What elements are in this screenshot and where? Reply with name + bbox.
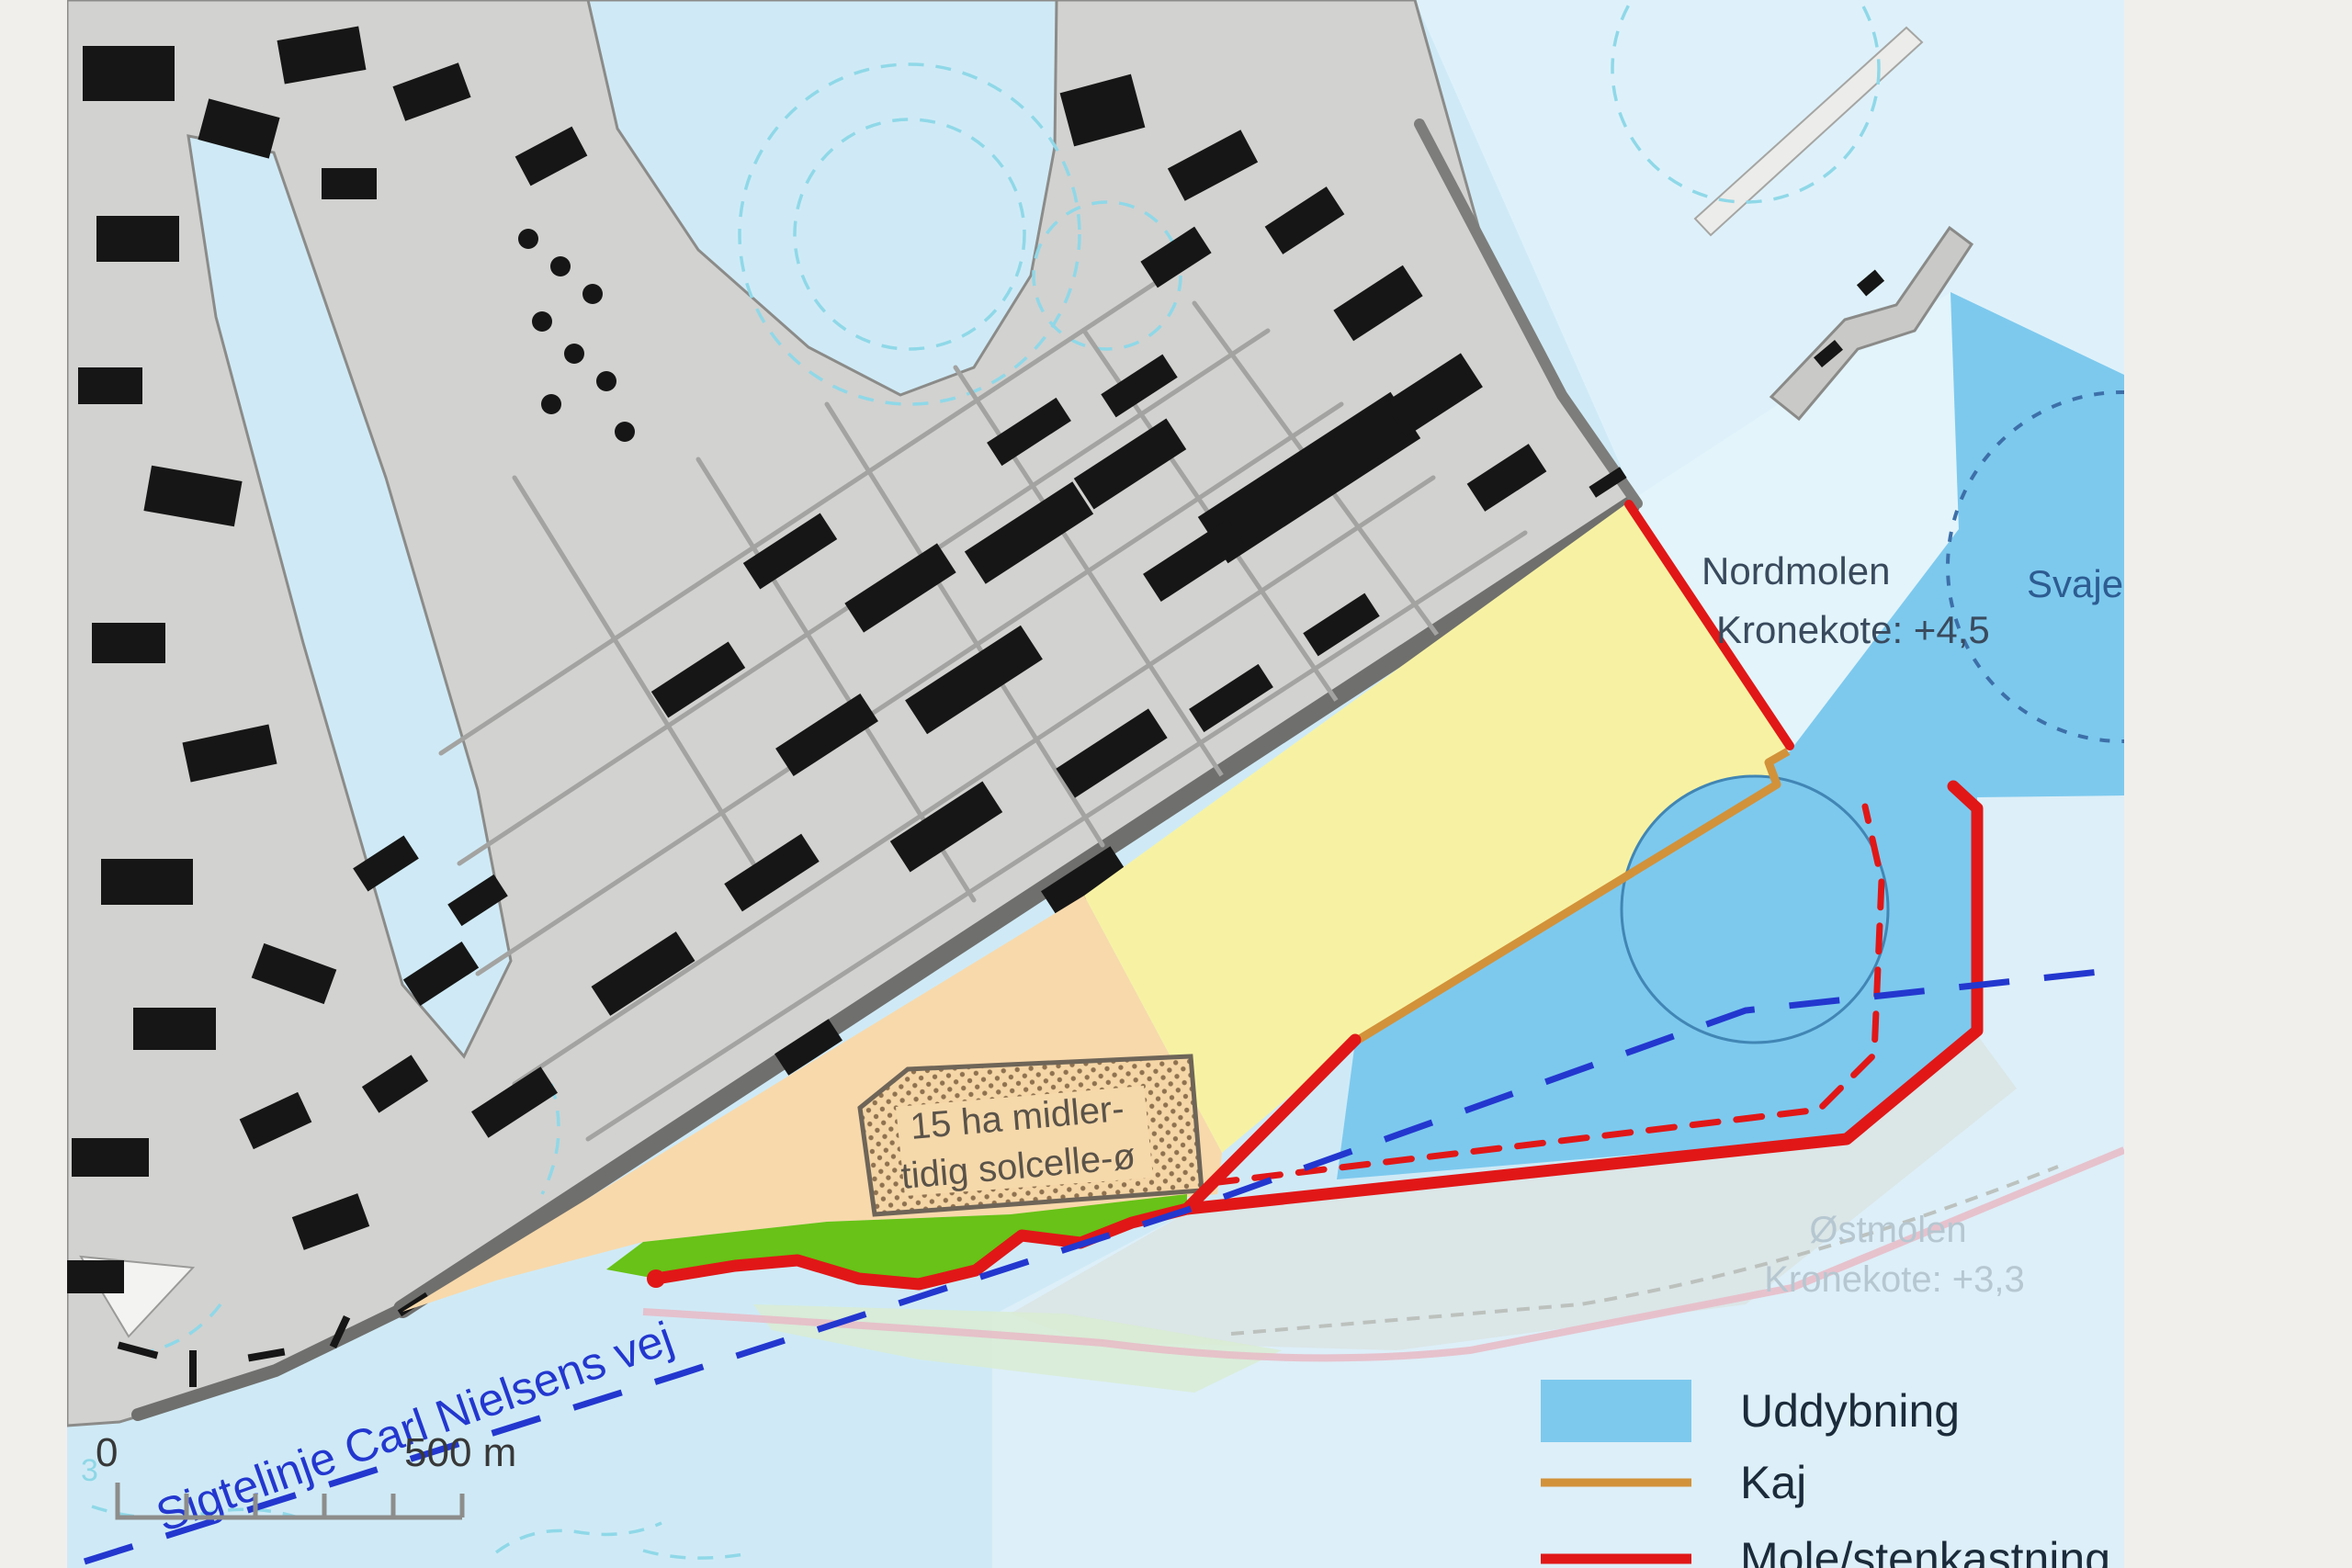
tank <box>541 394 561 414</box>
legend-label-uddybning: Uddybning <box>1740 1385 1960 1437</box>
turning-circle <box>1622 776 1888 1043</box>
scale-start-label: 0 <box>96 1430 118 1475</box>
tank <box>596 371 616 391</box>
tank <box>582 284 603 304</box>
building <box>72 1138 149 1177</box>
building <box>83 46 175 101</box>
nordmolen-kronekote-label: Kronekote: +4,5 <box>1716 608 1990 651</box>
harbor-plan-map: Nordmolen Kronekote: +4,5 Svajeb Østmole… <box>0 0 2352 1568</box>
mole-end-blob <box>647 1269 665 1288</box>
marina-pier <box>189 1350 197 1387</box>
tank <box>550 256 571 276</box>
building <box>96 216 179 262</box>
building <box>133 1008 216 1050</box>
building <box>322 168 377 199</box>
building <box>60 1260 124 1293</box>
scale-end-label: 500 m <box>404 1430 516 1475</box>
nordmolen-label: Nordmolen <box>1702 549 1890 592</box>
tank <box>518 229 538 249</box>
tank <box>532 311 552 332</box>
ostmolen-label: Østmolen <box>1809 1210 1966 1250</box>
building <box>78 367 142 404</box>
legend-label-mole: Mole/stenkastning <box>1740 1533 2110 1568</box>
frame-right-strip <box>2124 0 2352 1568</box>
building <box>101 859 193 905</box>
legend-label-kaj: Kaj <box>1740 1457 1806 1508</box>
building <box>92 623 165 663</box>
tank <box>564 344 584 364</box>
tank <box>615 422 635 442</box>
frame-left-strip <box>0 0 67 1568</box>
legend-item-uddybning: Uddybning <box>1541 1380 1960 1442</box>
ostmolen-kronekote-label: Kronekote: +3,3 <box>1764 1259 2025 1300</box>
legend-swatch-uddybning <box>1541 1380 1691 1442</box>
harbor-plan-page: Nordmolen Kronekote: +4,5 Svajeb Østmole… <box>0 0 2352 1568</box>
